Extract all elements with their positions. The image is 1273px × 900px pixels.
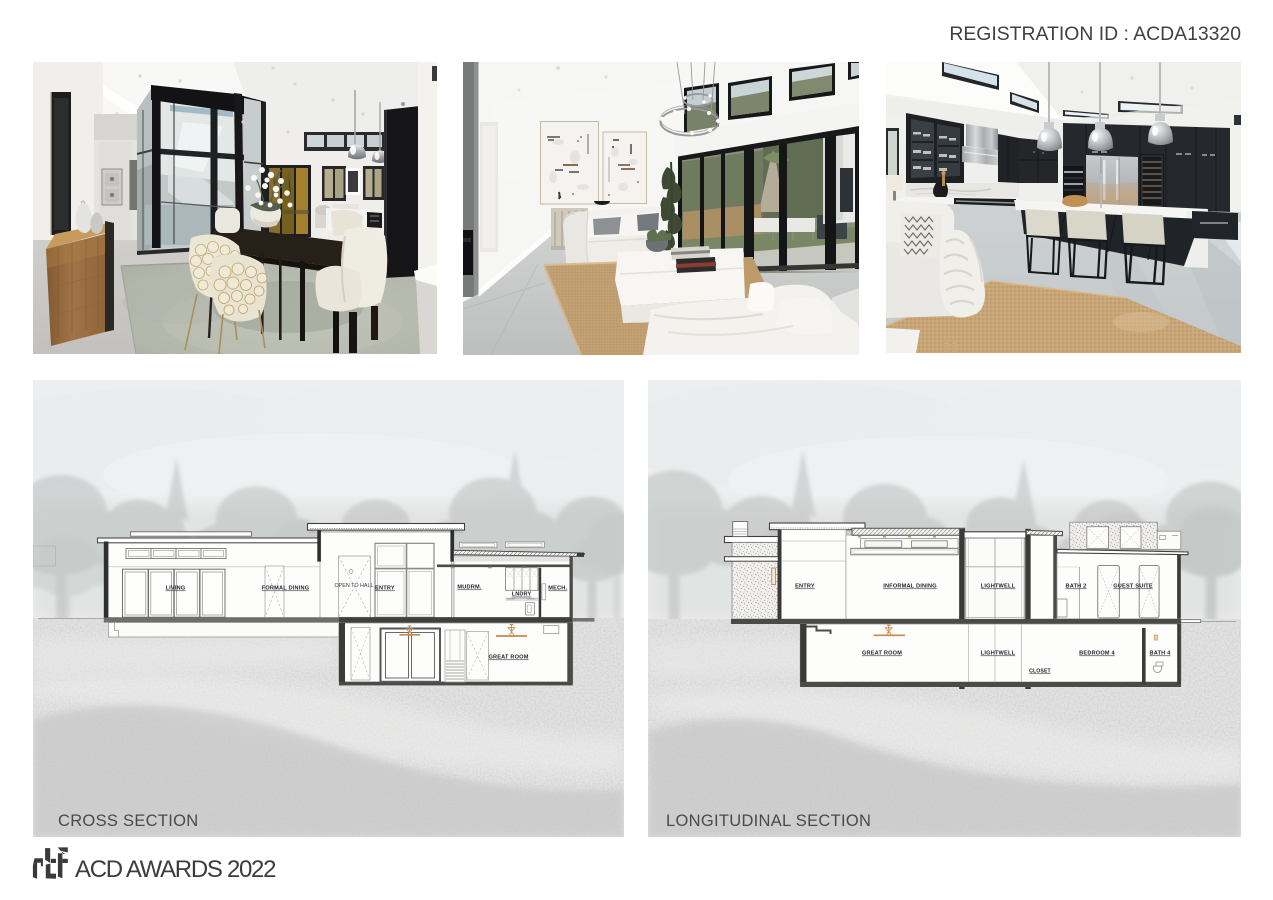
svg-text:LIGHTWELL: LIGHTWELL: [981, 584, 1016, 590]
svg-text:BATH 2: BATH 2: [1066, 584, 1087, 590]
svg-text:ENTRY: ENTRY: [795, 584, 815, 590]
svg-text:MECH.: MECH.: [548, 586, 567, 592]
svg-text:INFORMAL DINING: INFORMAL DINING: [883, 584, 937, 590]
svg-text:LIGHTWELL: LIGHTWELL: [981, 651, 1016, 657]
svg-text:GREAT ROOM: GREAT ROOM: [488, 655, 528, 661]
svg-text:BATH 4: BATH 4: [1150, 651, 1172, 657]
svg-text:OPEN TO HALL: OPEN TO HALL: [334, 583, 373, 589]
svg-text:LIVING: LIVING: [166, 586, 186, 592]
svg-text:GUEST SUITE: GUEST SUITE: [1113, 584, 1153, 590]
svg-text:BEDROOM 4: BEDROOM 4: [1079, 651, 1115, 657]
svg-text:FORMAL DINING: FORMAL DINING: [262, 586, 310, 592]
svg-text:LNDRY: LNDRY: [512, 592, 532, 598]
svg-text:ENTRY: ENTRY: [375, 586, 395, 592]
svg-text:CLOSET: CLOSET: [1029, 669, 1051, 675]
svg-text:MUDRM.: MUDRM.: [457, 585, 481, 591]
svg-text:GREAT ROOM: GREAT ROOM: [862, 651, 902, 657]
